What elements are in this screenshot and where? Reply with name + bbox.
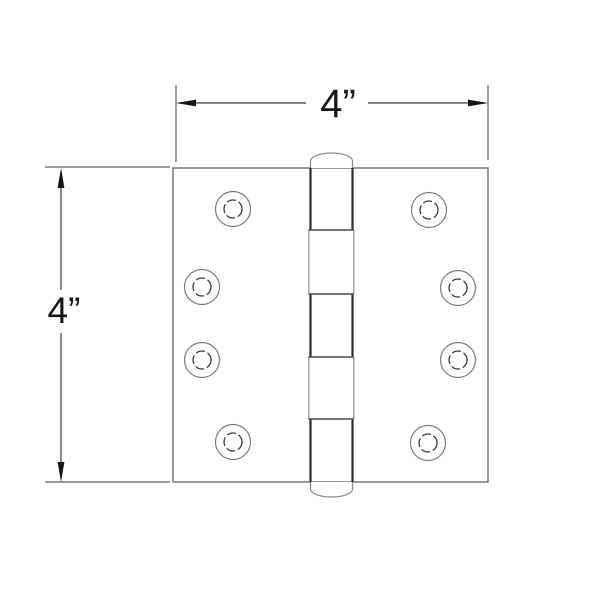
screw-hole <box>216 425 251 460</box>
screw-hole <box>185 343 220 378</box>
screw-hole <box>412 193 447 228</box>
screw-hole <box>411 426 446 461</box>
screw-hole <box>441 343 476 378</box>
screw-hole <box>441 271 476 306</box>
screw-hole <box>216 192 251 227</box>
screw-hole <box>185 270 220 305</box>
height-dimension: 4” <box>45 167 170 482</box>
hinge-diagram-canvas: 4” 4” <box>0 0 600 600</box>
arrow-down-icon <box>58 462 65 482</box>
arrow-left-icon <box>176 100 196 107</box>
hinge-diagram: 4” 4” <box>0 0 600 600</box>
pin-bottom-cap <box>311 482 353 497</box>
width-dimension-label: 4” <box>320 82 356 126</box>
arrow-up-icon <box>58 168 65 188</box>
height-dimension-label: 4” <box>48 290 81 331</box>
width-dimension: 4” <box>176 82 488 162</box>
arrow-right-icon <box>468 100 488 107</box>
pin-top-cap <box>311 153 353 168</box>
